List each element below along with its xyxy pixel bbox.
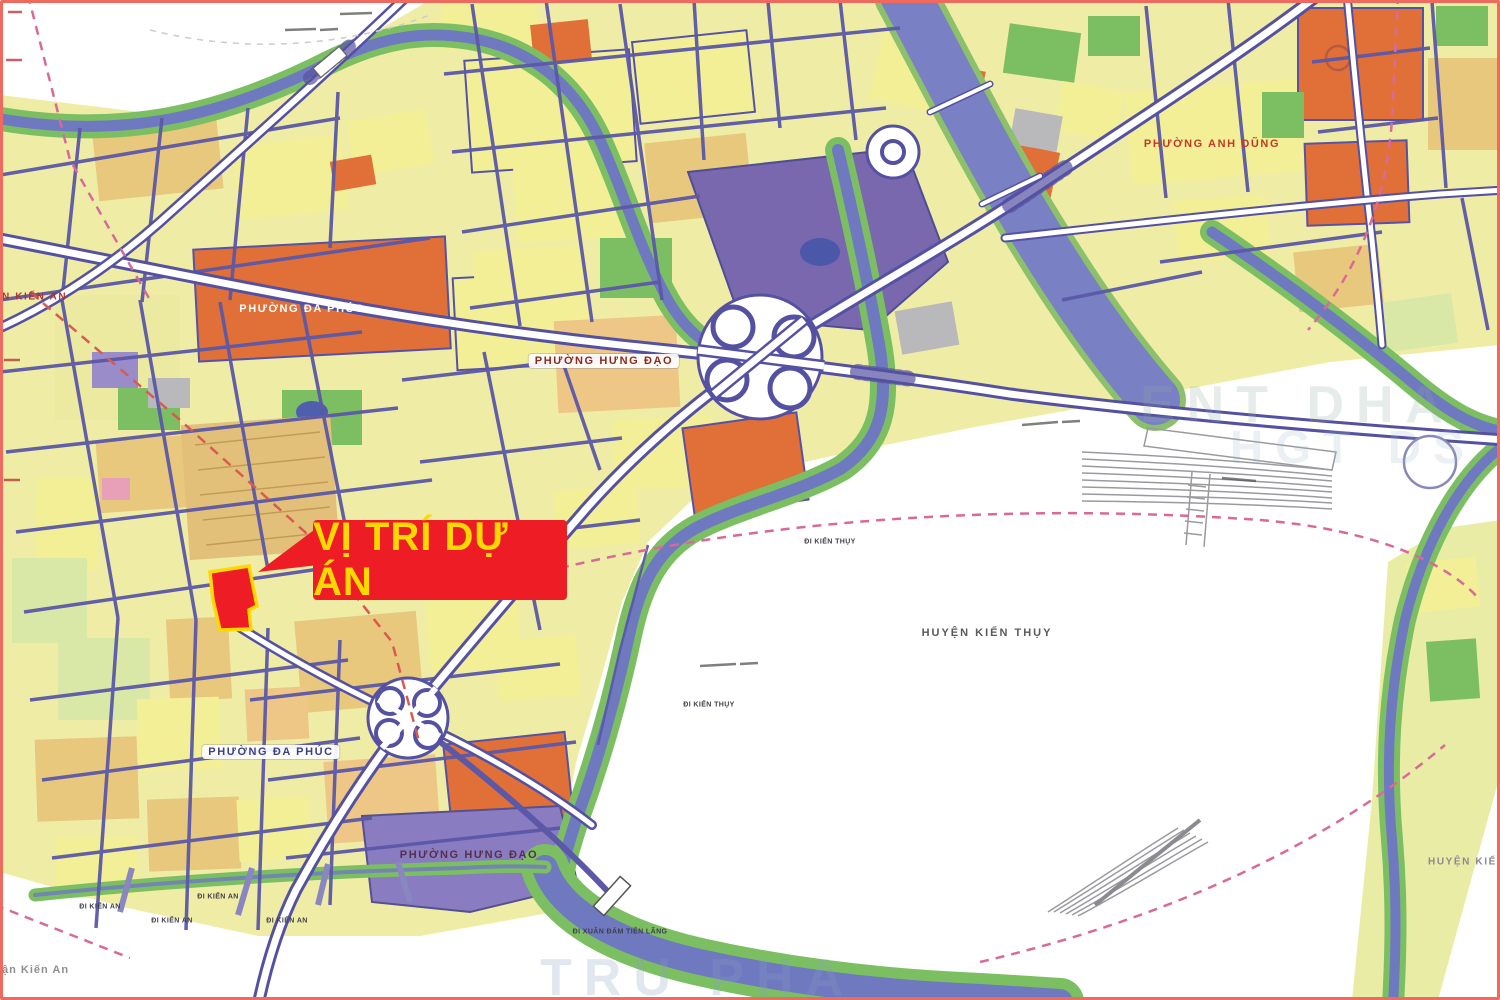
junction-circle-north	[867, 126, 919, 178]
road-label-di-xuan-dam-tien-lang: ĐI XUÂN ĐÁM TIÊN LÃNG	[573, 929, 668, 936]
district-label-quan-kien-an-left: N KIẾN AN	[2, 292, 67, 303]
district-label-huyen-kien-thuy-right: HUYỆN KIẾN THỤY	[1428, 857, 1500, 868]
road-label-di-kien-thuy-2: ĐI KIẾN THỤY	[683, 702, 734, 709]
roundabout-south	[368, 678, 448, 758]
project-location-callout-text: VỊ TRÍ DỰ ÁN	[313, 515, 567, 605]
district-label-phuong-da-phuc-north: PHƯỜNG ĐA PHÚC	[239, 303, 364, 315]
district-label-phuong-da-phuc-south: PHƯỜNG ĐA PHÚC	[202, 745, 339, 759]
district-label-phuong-hung-dao-north: PHƯỜNG HƯNG ĐẠO	[529, 354, 679, 368]
road-label-di-kien-an-3: ĐI KIẾN AN	[197, 894, 238, 901]
planning-map-canvas	[0, 0, 1500, 1000]
project-location-marker	[210, 566, 257, 630]
district-label-quan-kien-an-bottom: ận Kiến An	[2, 964, 69, 976]
road-label-di-kien-an-2: ĐI KIẾN AN	[151, 918, 192, 925]
junction-circle-east	[1404, 436, 1456, 488]
district-label-phuong-anh-dung: PHƯỜNG ANH DŨNG	[1144, 138, 1280, 150]
cloverleaf-interchange	[698, 295, 824, 419]
road-label-di-kien-an-1: ĐI KIẾN AN	[79, 904, 120, 911]
district-label-huyen-kien-thuy-center: HUYỆN KIẾN THỤY	[922, 627, 1053, 639]
road-label-di-kien-thuy-1: ĐI KIẾN THỤY	[804, 539, 855, 546]
road-label-di-kien-an-4: ĐI KIẾN AN	[266, 918, 307, 925]
planning-map-image: PHƯỜNG ĐA PHÚC PHƯỜNG HƯNG ĐẠO PHƯỜNG AN…	[0, 0, 1500, 1000]
project-location-callout: VỊ TRÍ DỰ ÁN	[313, 520, 567, 600]
district-label-phuong-hung-dao-south: PHƯỜNG HƯNG ĐẠO	[400, 849, 538, 861]
